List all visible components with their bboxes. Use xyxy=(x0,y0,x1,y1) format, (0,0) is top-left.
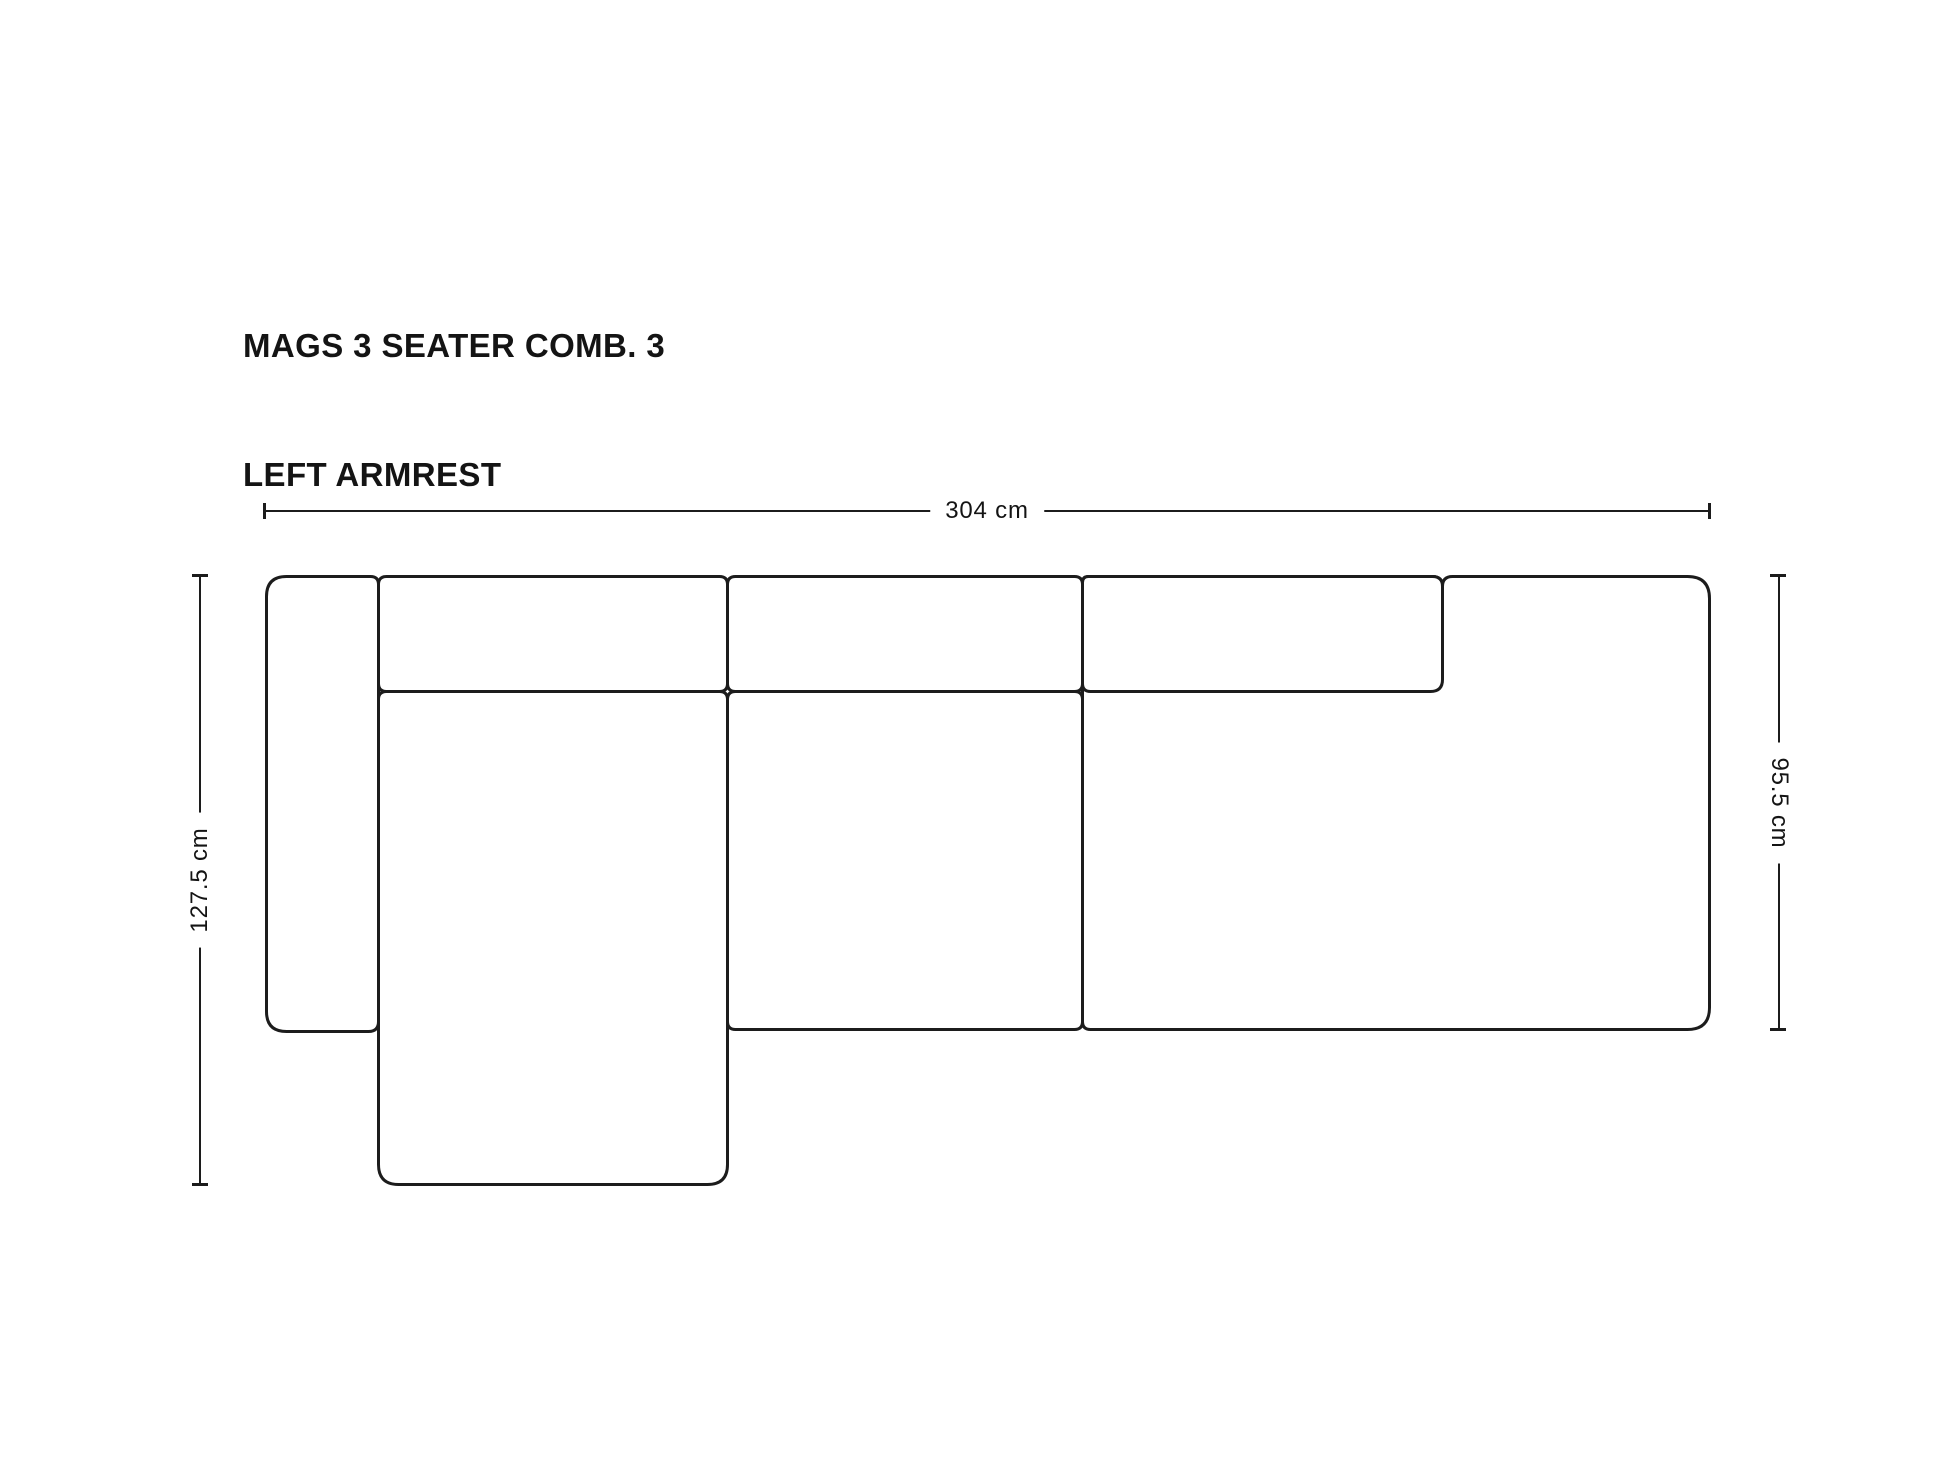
sofa-top-view-drawing xyxy=(0,0,1946,1464)
diagram-page: MAGS 3 SEATER COMB. 3 LEFT ARMREST 304 c… xyxy=(0,0,1946,1464)
back-cushion-middle-shape xyxy=(728,577,1083,692)
right-depth-dimension-tick-top xyxy=(1770,574,1786,577)
left-depth-dimension-label: 127.5 cm xyxy=(185,812,215,947)
left-depth-dimension-tick-top xyxy=(192,574,208,577)
chaise-longue-seat-shape xyxy=(379,692,728,1185)
left-armrest-shape xyxy=(267,577,379,1032)
right-depth-dimension-label: 95.5 cm xyxy=(1764,743,1794,864)
right-depth-dimension-tick-bottom xyxy=(1770,1028,1786,1031)
middle-seat-shape xyxy=(728,692,1083,1030)
width-dimension-tick-left xyxy=(263,503,266,519)
left-depth-dimension-tick-bottom xyxy=(192,1183,208,1186)
width-dimension-label: 304 cm xyxy=(930,496,1044,526)
width-dimension-tick-right xyxy=(1708,503,1711,519)
back-cushion-left-shape xyxy=(379,577,728,692)
back-cushion-right-shape xyxy=(1083,577,1443,692)
